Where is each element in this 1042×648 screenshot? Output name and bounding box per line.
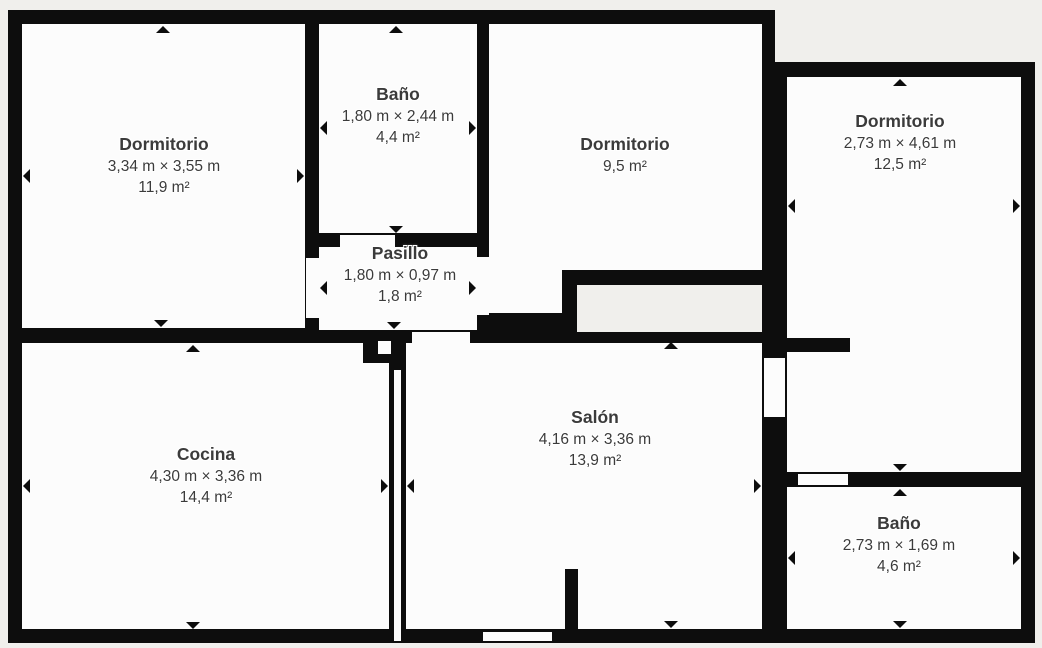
room-dimensions: 1,80 m × 2,44 m [288, 106, 508, 127]
wall-stub-junction [392, 361, 401, 370]
dimension-arrow-icon [664, 621, 678, 628]
dimension-arrow-icon [387, 322, 401, 329]
room-dimensions: 4,30 m × 3,36 m [96, 466, 316, 487]
room-label-pasillo: Pasillo 1,80 m × 0,97 m 1,8 m² [290, 242, 510, 307]
dimension-arrow-icon [154, 320, 168, 327]
door-opening-salon-top [412, 332, 470, 343]
dimension-arrow-icon [664, 342, 678, 349]
room-area: 13,9 m² [485, 450, 705, 471]
room-dimensions: 1,80 m × 0,97 m [290, 265, 510, 286]
room-name: Pasillo [290, 242, 510, 265]
room-area: 9,5 m² [515, 156, 735, 177]
dimension-arrow-icon [156, 26, 170, 33]
dimension-arrow-icon [893, 79, 907, 86]
floor-plan: Dormitorio 3,34 m × 3,55 m 11,9 m² Baño … [0, 0, 1042, 648]
dimension-arrow-icon [389, 226, 403, 233]
room-dimensions: 3,34 m × 3,55 m [54, 156, 274, 177]
room-name: Salón [485, 406, 705, 429]
dimension-arrow-icon [186, 622, 200, 629]
room-name: Baño [789, 512, 1009, 535]
dimension-arrow-icon [893, 621, 907, 628]
room-label-cocina: Cocina 4,30 m × 3,36 m 14,4 m² [96, 443, 316, 508]
room-label-bano-top: Baño 1,80 m × 2,44 m 4,4 m² [288, 83, 508, 148]
room-label-dormitorio-right: Dormitorio 2,73 m × 4,61 m 12,5 m² [790, 110, 1010, 175]
room-name: Dormitorio [790, 110, 1010, 133]
wall-stub-dormitorio-right [787, 338, 850, 352]
room-label-dormitorio-top-left: Dormitorio 3,34 m × 3,55 m 11,9 m² [54, 133, 274, 198]
wall-stub-salon [565, 569, 578, 629]
dimension-arrow-icon [389, 26, 403, 33]
dimension-arrow-icon [893, 464, 907, 471]
entry-recess [577, 285, 762, 332]
window-opening-bottom [483, 632, 552, 641]
room-label-salon: Salón 4,16 m × 3,36 m 13,9 m² [485, 406, 705, 471]
room-name: Cocina [96, 443, 316, 466]
dimension-arrow-icon [893, 489, 907, 496]
room-dimensions: 4,16 m × 3,36 m [485, 429, 705, 450]
junction-column-shaft [378, 341, 391, 354]
room-dimensions: 2,73 m × 1,69 m [789, 535, 1009, 556]
dimension-arrow-icon [407, 479, 414, 493]
room-area: 4,4 m² [288, 127, 508, 148]
door-opening-bano-right [798, 474, 848, 485]
room-area: 12,5 m² [790, 154, 1010, 175]
dimension-arrow-icon [754, 479, 761, 493]
room-label-bano-right: Baño 2,73 m × 1,69 m 4,6 m² [789, 512, 1009, 577]
dimension-arrow-icon [381, 479, 388, 493]
room-area: 14,4 m² [96, 487, 316, 508]
room-area: 4,6 m² [789, 556, 1009, 577]
dimension-arrow-icon [1013, 199, 1020, 213]
room-dimensions: 2,73 m × 4,61 m [790, 133, 1010, 154]
dimension-arrow-icon [788, 199, 795, 213]
room-area: 11,9 m² [54, 177, 274, 198]
room-name: Dormitorio [54, 133, 274, 156]
dimension-arrow-icon [23, 169, 30, 183]
room-name: Dormitorio [515, 133, 735, 156]
cocina-salon-partition-slit [394, 363, 401, 641]
dimension-arrow-icon [186, 345, 200, 352]
dimension-arrow-icon [23, 479, 30, 493]
dimension-arrow-icon [297, 169, 304, 183]
room-label-dormitorio-middle: Dormitorio 9,5 m² [515, 133, 735, 177]
room-area: 1,8 m² [290, 286, 510, 307]
door-opening-salon-dormitorio-right [764, 358, 785, 417]
dimension-arrow-icon [1013, 551, 1020, 565]
room-name: Baño [288, 83, 508, 106]
room-salon-floor [406, 343, 762, 629]
